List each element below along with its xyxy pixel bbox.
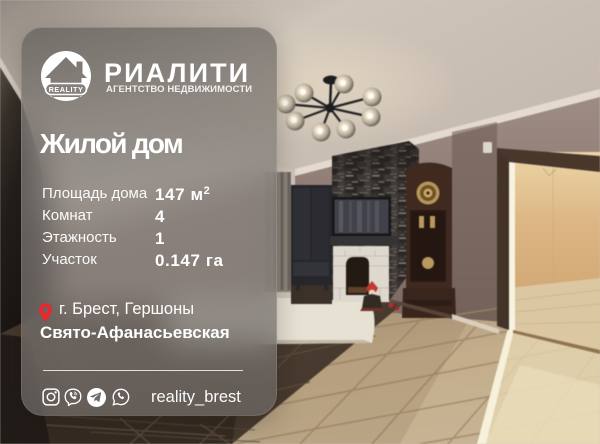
svg-text:REALITY: REALITY bbox=[49, 85, 84, 94]
